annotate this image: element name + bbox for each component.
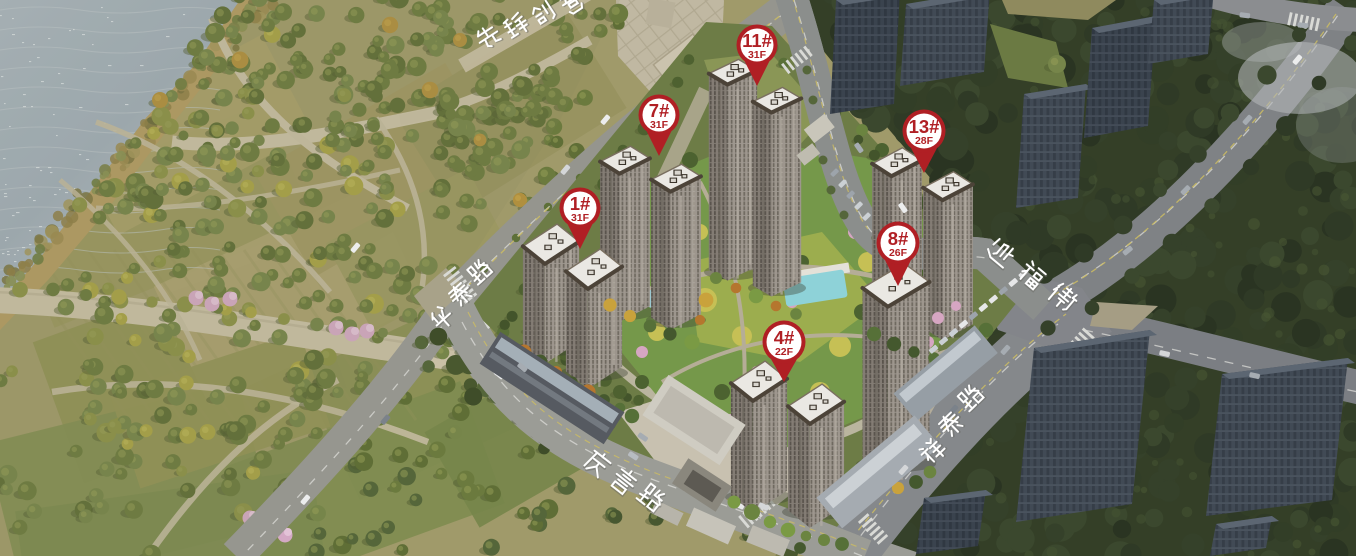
svg-text:31F: 31F <box>650 119 669 131</box>
svg-text:26F: 26F <box>889 247 908 259</box>
svg-text:28F: 28F <box>915 135 934 147</box>
svg-text:8#: 8# <box>888 228 909 249</box>
svg-text:31F: 31F <box>748 49 767 61</box>
svg-text:22F: 22F <box>775 346 794 358</box>
svg-text:7#: 7# <box>649 100 670 121</box>
svg-text:31F: 31F <box>571 212 590 224</box>
svg-text:13#: 13# <box>909 116 940 137</box>
svg-text:4#: 4# <box>774 327 795 348</box>
svg-text:11#: 11# <box>742 30 772 51</box>
svg-text:1#: 1# <box>570 193 591 214</box>
